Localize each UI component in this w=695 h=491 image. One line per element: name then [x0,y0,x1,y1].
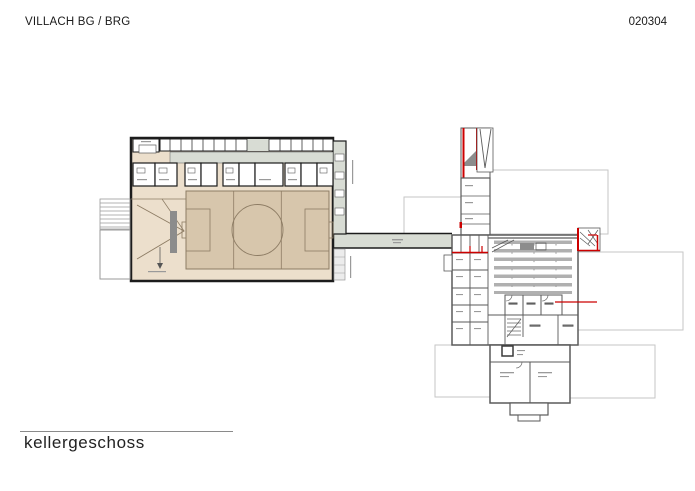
north-wing [460,178,491,235]
lift-shaft [502,346,513,356]
sports-hall-building [100,138,353,281]
school-building [444,128,600,421]
east-stair [578,228,600,251]
changing-rooms [133,163,333,186]
floor-plan-canvas [0,0,695,491]
drawing-sheet: { "page": { "title": "VILLACH BG / BRG",… [0,0,695,491]
hall-south-service-strip [334,249,351,280]
sports-court [182,191,333,269]
floor-label-rule [20,431,233,432]
court-boundary [186,191,329,269]
locker-cell-row [133,139,333,153]
hall-side-corridor [333,141,353,234]
red-wall [460,222,463,228]
main-body [444,228,600,345]
connecting-corridor [333,234,452,249]
south-wing [490,345,570,421]
hall-inner-corridor [170,152,333,163]
north-stair-shaft [461,128,493,178]
external-stair [100,199,130,279]
external-ramp [100,230,130,279]
floor-label: kellergeschoss [24,433,145,453]
south-entry [510,403,548,415]
